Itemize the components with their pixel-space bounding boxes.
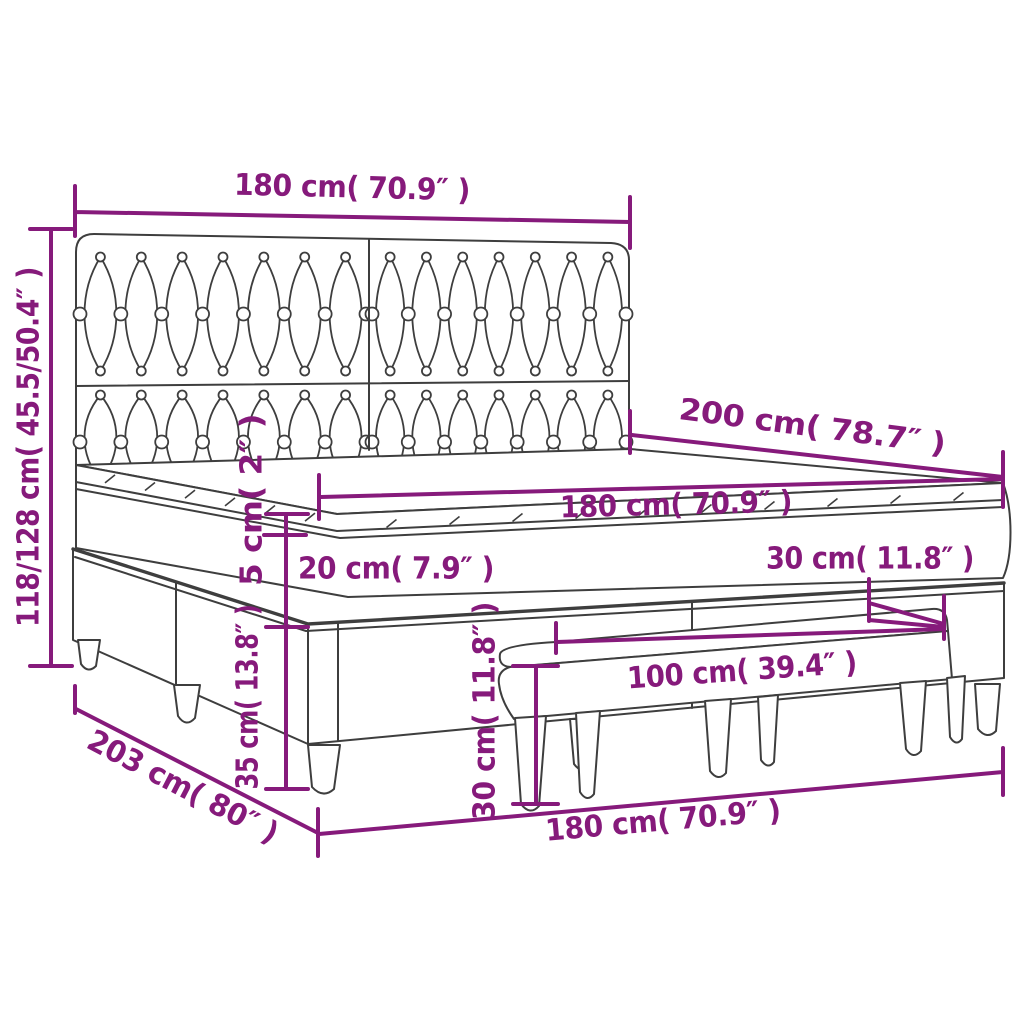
tuft-button (178, 367, 187, 376)
tuft-button (319, 436, 332, 449)
tuft-button (402, 308, 415, 321)
tuft-button (422, 367, 431, 376)
tuft-button (547, 436, 560, 449)
tuft-button (567, 253, 576, 262)
tuft-button (300, 367, 309, 376)
tuft-button (495, 367, 504, 376)
tuft-button (196, 308, 209, 321)
tuft-button (474, 308, 487, 321)
tuft-button (386, 367, 395, 376)
tuft-button (438, 308, 451, 321)
tuft-button (219, 253, 228, 262)
tuft-button (341, 367, 350, 376)
dimension-base-width: 180 cm( 70.9″ ) (318, 748, 1003, 856)
bed-leg (174, 685, 200, 723)
tuft-button (219, 391, 228, 400)
bed-length-label: 200 cm( 78.7″ ) (677, 392, 947, 462)
bed-dimension-diagram: 180 cm( 70.9″ ) 118/128 cm( 45.5/50.4″ )… (0, 0, 1024, 1024)
tuft-button (278, 308, 291, 321)
tuft-button (547, 308, 560, 321)
tuft-button (567, 391, 576, 400)
tuft-button (386, 253, 395, 262)
tuft-button (458, 391, 467, 400)
tuft-button (458, 367, 467, 376)
tuft-button (531, 253, 540, 262)
tuft-button (96, 391, 105, 400)
mattress-width-label: 180 cm( 70.9″ ) (560, 484, 793, 525)
bench-leg (576, 711, 600, 798)
tuft-button (137, 253, 146, 262)
tuft-button (511, 308, 524, 321)
tuft-button (495, 391, 504, 400)
tuft-button (366, 436, 379, 449)
bed-leg (308, 745, 340, 794)
bench-leg (758, 695, 778, 766)
tuft-button (74, 308, 87, 321)
tuft-button (96, 253, 105, 262)
tuft-button (511, 436, 524, 449)
bench-leg (900, 681, 926, 755)
tuft-button (531, 391, 540, 400)
bench-leg (947, 676, 965, 743)
tuft-button (341, 253, 350, 262)
tuft-button (259, 391, 268, 400)
bed-leg (975, 684, 1000, 735)
diagram-canvas: 180 cm( 70.9″ ) 118/128 cm( 45.5/50.4″ )… (0, 0, 1024, 1024)
tuft-button (386, 391, 395, 400)
tuft-button (300, 391, 309, 400)
tuft-button (341, 391, 350, 400)
tuft-button (531, 367, 540, 376)
base-height-label: 35 cm( 13.8″ ) (231, 605, 266, 790)
tuft-button (474, 436, 487, 449)
tuft-button (458, 253, 467, 262)
tuft-button (319, 308, 332, 321)
tuft-button (155, 308, 168, 321)
bench-leg (705, 699, 731, 777)
bench-leg (515, 716, 546, 811)
tuft-button (366, 308, 379, 321)
tuft-button (137, 367, 146, 376)
tuft-button (137, 391, 146, 400)
tuft-button (155, 436, 168, 449)
bed-leg (78, 640, 100, 670)
tuft-button (196, 436, 209, 449)
tuft-button (603, 253, 612, 262)
tuft-button (74, 436, 87, 449)
tuft-button (237, 308, 250, 321)
tuft-button (402, 436, 415, 449)
total-height-label: 118/128 cm( 45.5/50.4″ ) (12, 267, 47, 627)
bench-depth-label: 30 cm( 11.8″ ) (766, 542, 974, 577)
tuft-button (114, 436, 127, 449)
topper-height-label: 5 cm( 2″ ) (235, 414, 270, 586)
dimension-total-height: 118/128 cm( 45.5/50.4″ ) (12, 229, 73, 666)
tuft-button (178, 253, 187, 262)
bench-height-label: 30 cm( 11.8″ ) (468, 602, 503, 820)
tuft-button (259, 253, 268, 262)
headboard-width-label: 180 cm( 70.9″ ) (234, 168, 471, 209)
tuft-button (422, 391, 431, 400)
tuft-button (300, 253, 309, 262)
tuft-button (114, 308, 127, 321)
tuft-button (603, 391, 612, 400)
tuft-button (567, 367, 576, 376)
tuft-button (583, 436, 596, 449)
tuft-button (219, 367, 228, 376)
mattress-height-label: 20 cm( 7.9″ ) (298, 552, 494, 587)
tuft-button (178, 391, 187, 400)
tuft-button (495, 253, 504, 262)
tuft-button (438, 436, 451, 449)
tuft-button (603, 367, 612, 376)
tuft-button (96, 367, 105, 376)
headboard (74, 234, 633, 485)
tuft-button (278, 436, 291, 449)
tuft-button (620, 308, 633, 321)
tuft-button (583, 308, 596, 321)
tuft-button (259, 367, 268, 376)
tuft-button (422, 253, 431, 262)
